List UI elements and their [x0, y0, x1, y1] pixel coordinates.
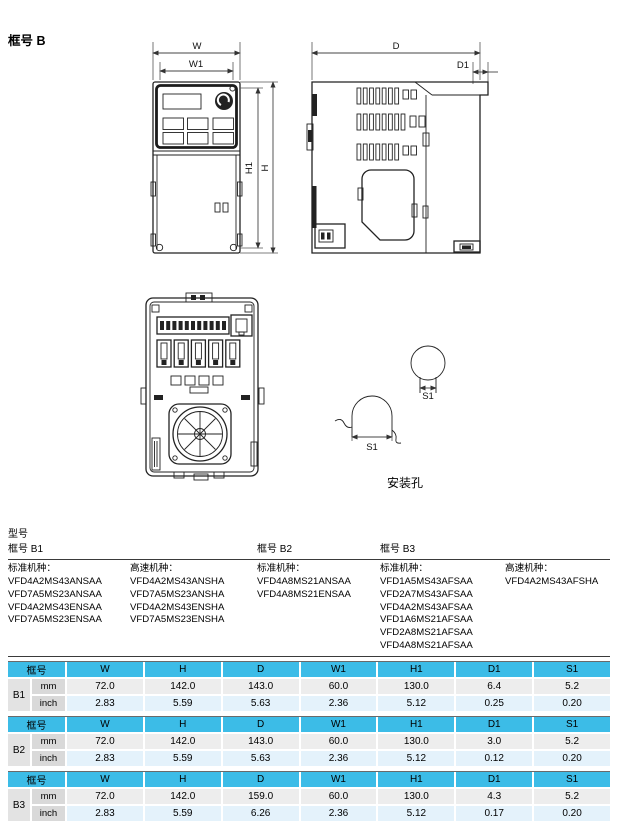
rj45-port: [231, 315, 252, 336]
dimension-value-mm: 130.0: [378, 679, 454, 694]
table-header-cell: S1: [534, 662, 610, 677]
dimension-value-mm: 3.0: [456, 734, 532, 749]
dimension-value-inch: 0.25: [456, 696, 532, 711]
divider-line-top: [8, 559, 610, 560]
dimension-value-inch: 5.63: [223, 751, 299, 766]
standard-models-label: 标准机种：: [257, 562, 351, 576]
model-number: VFD4A2MS43ANSAA: [8, 576, 102, 589]
dimension-value-inch: 2.83: [67, 806, 143, 821]
models-heading: 型号: [8, 528, 28, 542]
frame-label-cell: B2: [8, 734, 30, 766]
unit-label-inch: inch: [32, 751, 65, 766]
unit-label-mm: mm: [32, 734, 65, 749]
dimension-value-inch: 0.20: [534, 806, 610, 821]
model-list: VFD4A2MS43ANSHAVFD7A5MS23ANSHAVFD4A2MS43…: [130, 576, 224, 627]
model-column-b3-standard: 标准机种： VFD1A5MS43AFSAAVFD2A7MS43AFSAAVFD4…: [380, 562, 473, 653]
frame-b3-label: 框号 B3: [380, 542, 415, 557]
dim-label-w1: W1: [189, 59, 203, 70]
table-header-cell: D: [223, 772, 299, 787]
unit-label-mm: mm: [32, 789, 65, 804]
drive-bottom-body: [141, 293, 264, 480]
dim-label-h1: H1: [244, 162, 255, 174]
frame-b2-label: 框号 B2: [257, 542, 292, 557]
dimension-value-inch: 5.59: [145, 806, 221, 821]
dim-label-s1: S1: [422, 391, 434, 402]
table-header-cell: D: [223, 717, 299, 732]
dimension-value-mm: 72.0: [67, 789, 143, 804]
model-number: VFD2A8MS21AFSAA: [380, 627, 473, 640]
model-number: VFD4A8MS21ANSAA: [257, 576, 351, 589]
standard-models-label: 标准机种：: [8, 562, 102, 576]
dimension-value-inch: 5.59: [145, 751, 221, 766]
dim-label-d1: D1: [457, 60, 469, 71]
model-number: VFD7A5MS23ANSAA: [8, 589, 102, 602]
table-header-cell: W1: [301, 717, 377, 732]
model-number: VFD7A5MS23ENSAA: [8, 614, 102, 627]
dimension-value-inch: 5.12: [378, 751, 454, 766]
model-column-b1-standard: 标准机种： VFD4A2MS43ANSAAVFD7A5MS23ANSAAVFD4…: [8, 562, 102, 627]
dimension-value-mm: 5.2: [534, 789, 610, 804]
table-header-cell: H: [145, 717, 221, 732]
model-column-b3-highspeed: 高速机种： VFD4A2MS43AFSHA: [505, 562, 598, 589]
table-header-cell: W1: [301, 662, 377, 677]
model-list: VFD4A8MS21ANSAAVFD4A8MS21ENSAA: [257, 576, 351, 602]
dimension-value-inch: 5.59: [145, 696, 221, 711]
table-header-cell: 框号: [8, 662, 65, 677]
dimension-value-mm: 143.0: [223, 679, 299, 694]
dimension-value-mm: 142.0: [145, 734, 221, 749]
model-list: VFD4A2MS43ANSAAVFD7A5MS23ANSAAVFD4A2MS43…: [8, 576, 102, 627]
dimension-value-mm: 6.4: [456, 679, 532, 694]
table-header-cell: D1: [456, 772, 532, 787]
keypad-display: [163, 94, 201, 109]
table-header-cell: 框号: [8, 717, 65, 732]
cooling-fan: [169, 404, 231, 464]
highspeed-models-label: 高速机种：: [130, 562, 224, 576]
drive-side-body: [307, 82, 488, 253]
dimension-value-inch: 2.36: [301, 696, 377, 711]
dimension-value-mm: 5.2: [534, 734, 610, 749]
table-header-cell: 框号: [8, 772, 65, 787]
manual-page: 框号 B W W1: [0, 0, 618, 840]
model-number: VFD7A5MS23ENSHA: [130, 614, 224, 627]
dimension-value-mm: 60.0: [301, 679, 377, 694]
mounting-hole-caption: 安装孔: [387, 475, 423, 490]
dimension-value-mm: 142.0: [145, 789, 221, 804]
page-title: 框号 B: [8, 30, 46, 49]
frame-b1-label: 框号 B1: [8, 542, 43, 557]
model-number: VFD4A2MS43ENSHA: [130, 602, 224, 615]
mounting-hole-slot: S1: [335, 396, 401, 453]
dimension-value-inch: 5.12: [378, 696, 454, 711]
table-header-cell: W1: [301, 772, 377, 787]
unit-label-inch: inch: [32, 806, 65, 821]
unit-label-mm: mm: [32, 679, 65, 694]
frame-label-cell: B1: [8, 679, 30, 711]
drive-front-body: [151, 82, 242, 253]
table-header-cell: W: [67, 717, 143, 732]
table-header-cell: W: [67, 772, 143, 787]
dimension-value-inch: 2.36: [301, 751, 377, 766]
dimension-value-inch: 5.12: [378, 806, 454, 821]
table-header-cell: D1: [456, 662, 532, 677]
dim-label-d: D: [393, 41, 400, 52]
model-list: VFD1A5MS43AFSAAVFD2A7MS43AFSAAVFD4A2MS43…: [380, 576, 473, 653]
dimension-value-mm: 159.0: [223, 789, 299, 804]
table-header-cell: H1: [378, 662, 454, 677]
unit-label-inch: inch: [32, 696, 65, 711]
dimension-value-inch: 0.12: [456, 751, 532, 766]
dim-label-w: W: [193, 41, 202, 52]
dimension-value-inch: 6.26: [223, 806, 299, 821]
model-number: VFD4A2MS43ANSHA: [130, 576, 224, 589]
terminal-cover: [362, 170, 414, 240]
dimension-value-mm: 72.0: [67, 734, 143, 749]
model-number: VFD4A8MS21ENSAA: [257, 589, 351, 602]
dimension-table-b1: 框号WHDW1H1D1S1B1mm72.0142.0143.060.0130.0…: [8, 661, 610, 711]
dim-label-h: H: [260, 164, 271, 171]
model-number: VFD4A2MS43AFSHA: [505, 576, 598, 589]
dimension-value-mm: 4.3: [456, 789, 532, 804]
dimension-value-mm: 72.0: [67, 679, 143, 694]
dimension-table-b3: 框号WHDW1H1D1S1B3mm72.0142.0159.060.0130.0…: [8, 771, 610, 821]
bottom-view-drawing: [138, 292, 268, 484]
power-terminals: [157, 340, 240, 367]
dimension-value-mm: 142.0: [145, 679, 221, 694]
mounting-hole-drawing: S1 S1 安装孔: [335, 335, 505, 495]
model-number: VFD4A8MS21AFSAA: [380, 640, 473, 653]
table-header-cell: H1: [378, 717, 454, 732]
model-number: VFD1A6MS21AFSAA: [380, 614, 473, 627]
model-column-b1-highspeed: 高速机种： VFD4A2MS43ANSHAVFD7A5MS23ANSHAVFD4…: [130, 562, 224, 627]
dim-label-s1-slot: S1: [366, 442, 378, 453]
model-number: VFD1A5MS43AFSAA: [380, 576, 473, 589]
dimension-value-inch: 5.63: [223, 696, 299, 711]
table-header-cell: S1: [534, 717, 610, 732]
table-header-cell: W: [67, 662, 143, 677]
model-number: VFD4A2MS43ENSAA: [8, 602, 102, 615]
dimension-value-inch: 0.20: [534, 696, 610, 711]
dimension-value-mm: 130.0: [378, 734, 454, 749]
table-header-cell: H: [145, 772, 221, 787]
dimension-value-mm: 5.2: [534, 679, 610, 694]
dimension-value-inch: 0.17: [456, 806, 532, 821]
dimension-value-mm: 60.0: [301, 734, 377, 749]
frame-label-cell: B3: [8, 789, 30, 821]
models-section: 型号 框号 B1 框号 B2 框号 B3 标准机种： VFD4A2MS43ANS…: [8, 528, 610, 660]
dimension-value-mm: 143.0: [223, 734, 299, 749]
table-header-cell: D1: [456, 717, 532, 732]
front-view-drawing: W W1: [140, 38, 310, 265]
model-number: VFD4A2MS43AFSAA: [380, 602, 473, 615]
mounting-hole-round: S1: [411, 346, 445, 402]
standard-models-label: 标准机种：: [380, 562, 473, 576]
model-number: VFD7A5MS23ANSHA: [130, 589, 224, 602]
side-view-drawing: D D1: [303, 38, 498, 265]
dimension-value-inch: 2.83: [67, 751, 143, 766]
model-list: VFD4A2MS43AFSHA: [505, 576, 598, 589]
highspeed-models-label: 高速机种：: [505, 562, 598, 576]
table-header-cell: H: [145, 662, 221, 677]
model-number: VFD2A7MS43AFSAA: [380, 589, 473, 602]
dimension-table-b2: 框号WHDW1H1D1S1B2mm72.0142.0143.060.0130.0…: [8, 716, 610, 766]
dimension-value-inch: 0.20: [534, 751, 610, 766]
dimension-value-inch: 2.83: [67, 696, 143, 711]
divider-line-bottom: [8, 656, 610, 657]
dimension-value-inch: 2.36: [301, 806, 377, 821]
table-header-cell: S1: [534, 772, 610, 787]
table-header-cell: D: [223, 662, 299, 677]
model-column-b2-standard: 标准机种： VFD4A8MS21ANSAAVFD4A8MS21ENSAA: [257, 562, 351, 602]
dimension-value-mm: 130.0: [378, 789, 454, 804]
dimension-value-mm: 60.0: [301, 789, 377, 804]
table-header-cell: H1: [378, 772, 454, 787]
vent-slots: [357, 88, 425, 160]
